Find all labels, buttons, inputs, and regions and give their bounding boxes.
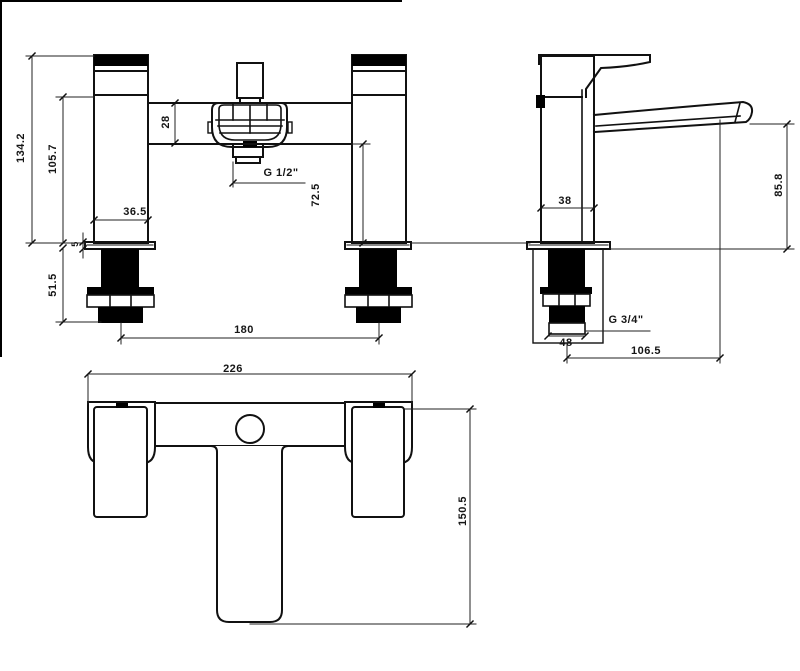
front-dimensions: [26, 53, 530, 344]
plan-right-handle-mark: [373, 403, 385, 408]
right-thread: [359, 249, 397, 287]
right-handle-cap: [352, 55, 406, 66]
left-handle-pillar: [94, 55, 148, 243]
front-view: [26, 53, 530, 344]
left-inlet-tail: [87, 249, 154, 323]
drawing-canvas: [0, 0, 800, 671]
technical-drawing: 134.2 105.7 51.5 5 36.5 28 G 1/2" 72.5 1…: [0, 0, 800, 671]
plan-left-handle: [94, 407, 147, 517]
plan-right-handle: [352, 407, 404, 517]
handle-indicator-dot: [536, 95, 545, 108]
plan-view: [85, 371, 476, 627]
left-thread: [101, 249, 139, 287]
left-handle-cap: [94, 55, 148, 66]
sheet-border: [0, 0, 401, 356]
side-view: [527, 55, 794, 363]
handshower-cradle: [208, 103, 292, 147]
diverter-knob: [237, 63, 263, 103]
front-dim-ticks: [29, 53, 382, 341]
side-spout: [594, 102, 752, 132]
right-handle-pillar: [352, 55, 406, 243]
plan-spout-fill: [211, 446, 288, 622]
right-inlet-tail: [345, 249, 412, 323]
side-inlet-tail: [533, 249, 603, 343]
side-body: [536, 56, 594, 243]
plan-left-handle-mark: [116, 403, 128, 408]
side-thread: [548, 249, 585, 287]
